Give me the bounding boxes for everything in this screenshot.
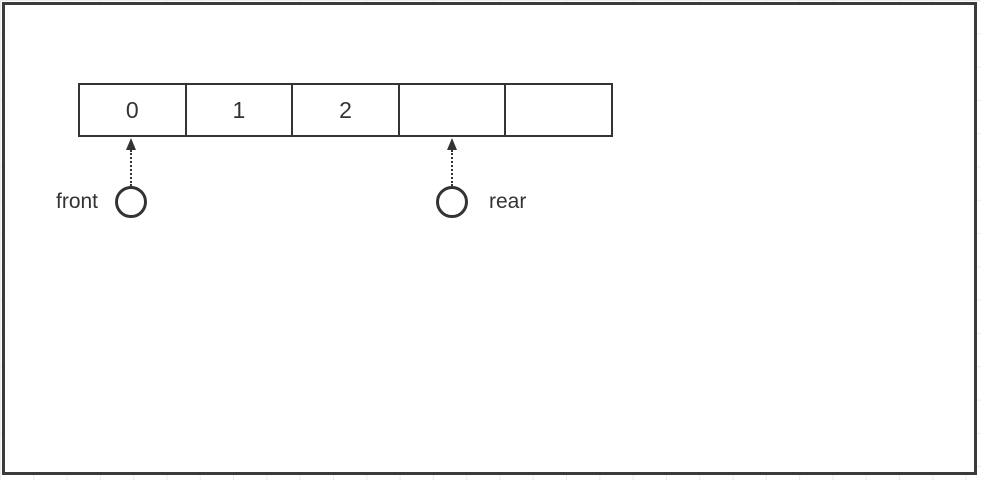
arrow-up-icon xyxy=(447,138,457,150)
queue-array: 0 1 2 xyxy=(78,83,613,137)
rear-pointer xyxy=(436,138,468,218)
front-pointer-circle xyxy=(115,186,147,218)
arrow-up-icon xyxy=(126,138,136,150)
rear-pointer-circle xyxy=(436,186,468,218)
dotted-line xyxy=(130,150,132,186)
front-label: front xyxy=(56,190,98,213)
array-cell xyxy=(506,85,611,135)
cell-value: 1 xyxy=(232,99,245,122)
cell-value: 0 xyxy=(126,99,139,122)
dotted-line xyxy=(451,150,453,186)
array-cell xyxy=(400,85,507,135)
front-pointer xyxy=(115,138,147,218)
diagram-canvas-frame xyxy=(2,2,977,475)
cell-value: 2 xyxy=(339,99,352,122)
canvas-background: 0 1 2 front rear xyxy=(0,0,981,480)
rear-label: rear xyxy=(489,190,526,213)
array-cell: 2 xyxy=(293,85,400,135)
array-cell: 0 xyxy=(80,85,187,135)
array-cell: 1 xyxy=(187,85,294,135)
